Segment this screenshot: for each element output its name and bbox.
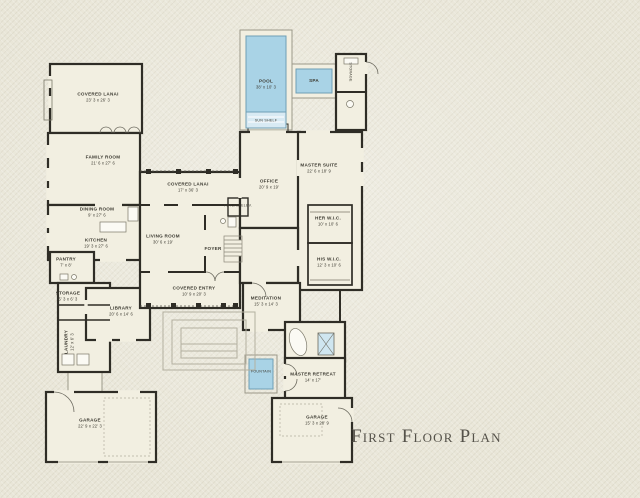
floor-plan-page: COVERED LANAI23' 3 x 26' 3 FAMILY ROOM21… — [0, 0, 640, 498]
dryer — [77, 354, 89, 365]
powder-sink — [221, 219, 226, 224]
bath-sink — [72, 275, 77, 280]
spa-water — [296, 69, 332, 93]
room-covered-lanai-nw — [50, 64, 142, 133]
room-garage-left — [46, 392, 156, 462]
room-office — [240, 132, 300, 228]
pool-sun-shelf — [246, 112, 286, 128]
storage-bench — [344, 58, 358, 64]
room-corridor — [240, 228, 298, 283]
kitchen-island — [100, 222, 126, 232]
entry-steps — [163, 312, 255, 370]
powder-toilet — [228, 217, 236, 227]
room-garage-right — [272, 398, 352, 462]
bath-toilet — [60, 274, 68, 280]
fountain-water — [249, 359, 273, 389]
room-family — [48, 133, 140, 205]
cabana-toilet — [347, 101, 354, 108]
floor-plan-drawing — [0, 0, 640, 498]
washer — [62, 354, 74, 365]
kitchen-appliance — [128, 207, 138, 221]
pool-water — [246, 36, 286, 112]
plan-title: First Floor Plan — [351, 426, 502, 448]
